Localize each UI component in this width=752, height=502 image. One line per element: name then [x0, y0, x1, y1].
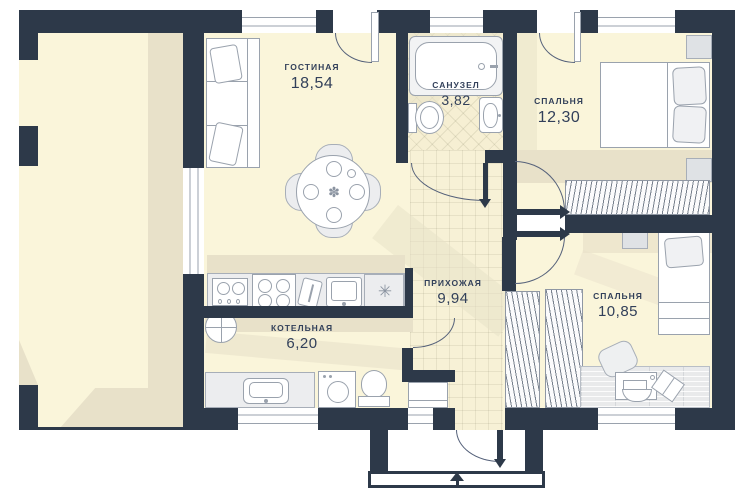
room-name: ПРИХОЖАЯ	[415, 278, 491, 289]
terrace-edge	[19, 427, 185, 430]
sofa-cushion	[209, 44, 243, 84]
plate	[326, 207, 342, 223]
room-name: КОТЕЛЬНАЯ	[258, 323, 346, 334]
room-label-bedroom1: СПАЛЬНЯ 12,30	[520, 96, 598, 128]
wall-kitchen-side	[405, 268, 413, 312]
pillow	[672, 105, 707, 144]
dish-rack	[212, 278, 248, 306]
wall-top	[316, 10, 333, 33]
desk-lamp	[650, 375, 655, 380]
vent-unit: ✳	[364, 274, 404, 310]
room-label-hall: ПРИХОЖАЯ 9,94	[415, 278, 491, 308]
flower-icon: ✽	[325, 183, 343, 201]
wall-living-terrace	[183, 274, 204, 430]
door-arrow-bedroom1	[560, 205, 570, 219]
wall-living-bath	[396, 10, 408, 163]
window-hall-small	[408, 408, 433, 430]
kitchen-sink	[326, 277, 362, 307]
bed-divider	[659, 318, 709, 319]
room-name: СПАЛЬНЯ	[520, 96, 598, 107]
burner	[258, 279, 272, 293]
washer-knob	[323, 375, 326, 378]
porch-wall-right	[525, 430, 543, 471]
bathtub-drain	[478, 63, 485, 70]
floor-plan: ✽ ✳	[0, 0, 752, 502]
kitchen-shadow	[207, 255, 405, 273]
wall-living-terrace	[183, 10, 204, 168]
room-label-boiler: КОТЕЛЬНАЯ 6,20	[258, 323, 346, 353]
bed-blanket-line	[667, 63, 668, 147]
cup	[217, 282, 230, 295]
bed-single	[658, 231, 710, 335]
nightstand	[686, 35, 712, 59]
wall-top	[19, 10, 242, 33]
faucet	[264, 399, 268, 403]
entry-cabinet	[408, 382, 448, 408]
shelf	[622, 231, 648, 249]
vent-icon: ✳	[365, 282, 405, 302]
entry-direction-stem	[456, 480, 459, 487]
wall-bath-stub	[485, 150, 517, 163]
door-arrow-bedroom2	[560, 227, 570, 241]
wall-bedrooms	[565, 215, 712, 233]
room-name: СПАЛЬНЯ	[580, 291, 656, 302]
wardrobe	[565, 180, 710, 215]
nightstand	[686, 158, 712, 182]
wall-top	[483, 10, 537, 33]
wall-bottom	[675, 408, 735, 430]
room-label-bathroom: САНУЗЕЛ 3,82	[420, 80, 492, 109]
door-leaf-entry	[497, 430, 503, 461]
window-bedroom1	[598, 10, 675, 33]
burner	[276, 279, 290, 293]
glazing-terrace	[183, 168, 204, 274]
wall-top	[580, 10, 598, 33]
plate	[303, 184, 319, 200]
room-area: 9,94	[415, 290, 491, 309]
door-leaf-bathroom	[483, 163, 488, 200]
wardrobe	[505, 291, 540, 408]
wall-left-pier	[19, 126, 38, 166]
room-label-living: ГОСТИНАЯ 18,54	[262, 62, 362, 94]
window-boiler	[238, 408, 318, 430]
boiler-toilet-bowl	[361, 370, 387, 398]
sink-basin	[331, 281, 357, 301]
plate	[349, 184, 365, 200]
bathtub-tap	[490, 65, 498, 68]
drop	[227, 299, 231, 304]
drop	[236, 299, 240, 304]
room-name: ГОСТИНАЯ	[262, 62, 362, 73]
wall-hall-bedroom2	[502, 237, 516, 291]
stove	[252, 274, 296, 310]
bed-double	[600, 62, 710, 148]
boiler-toilet-tank	[358, 396, 390, 407]
wall-bottom	[505, 408, 598, 430]
sofa-back-line	[247, 39, 248, 167]
bed-divider	[659, 302, 709, 303]
faucet	[498, 114, 501, 117]
room-area: 3,82	[420, 92, 492, 110]
wall-bottom	[433, 408, 455, 430]
knife	[308, 284, 314, 302]
room-area: 10,85	[580, 303, 656, 322]
sink-basin	[249, 382, 283, 398]
room-area: 6,20	[258, 335, 346, 354]
boiler-sink	[243, 378, 289, 404]
door-leaf-bedroom1	[516, 209, 562, 215]
drop	[218, 299, 222, 304]
porch-wall-left	[370, 430, 388, 471]
window-bedroom2	[598, 408, 675, 430]
cabinet-line	[409, 400, 447, 401]
room-name: САНУЗЕЛ	[420, 80, 492, 91]
room-label-bedroom2: СПАЛЬНЯ 10,85	[580, 291, 656, 321]
book-spine	[662, 378, 674, 395]
toilet-seat	[420, 106, 439, 129]
door-arrow-bathroom	[479, 199, 491, 208]
door-panel-living	[371, 12, 379, 62]
wall-left-pier	[19, 385, 38, 430]
washer-knob	[329, 375, 332, 378]
door-panel-bedroom1-ext	[574, 12, 581, 62]
door-arrow-entry	[494, 459, 506, 468]
door-leaf-bedroom2	[516, 231, 562, 237]
wall-left-pier	[19, 10, 38, 60]
wardrobe	[545, 289, 583, 408]
plate	[326, 161, 342, 177]
window-bathroom	[430, 10, 483, 33]
window-living	[242, 10, 316, 33]
washing-machine	[318, 371, 356, 408]
wall-kitchen	[204, 306, 413, 318]
teacup	[347, 169, 356, 178]
wall-right	[712, 10, 735, 430]
room-area: 12,30	[520, 108, 598, 128]
room-area: 18,54	[262, 74, 362, 94]
washer-drum	[327, 381, 349, 403]
dining-table: ✽	[296, 155, 370, 229]
pillow	[664, 235, 704, 268]
pillow	[672, 66, 707, 106]
wall-entry	[402, 370, 455, 382]
wall-bottom	[318, 408, 408, 430]
cup	[232, 282, 245, 295]
